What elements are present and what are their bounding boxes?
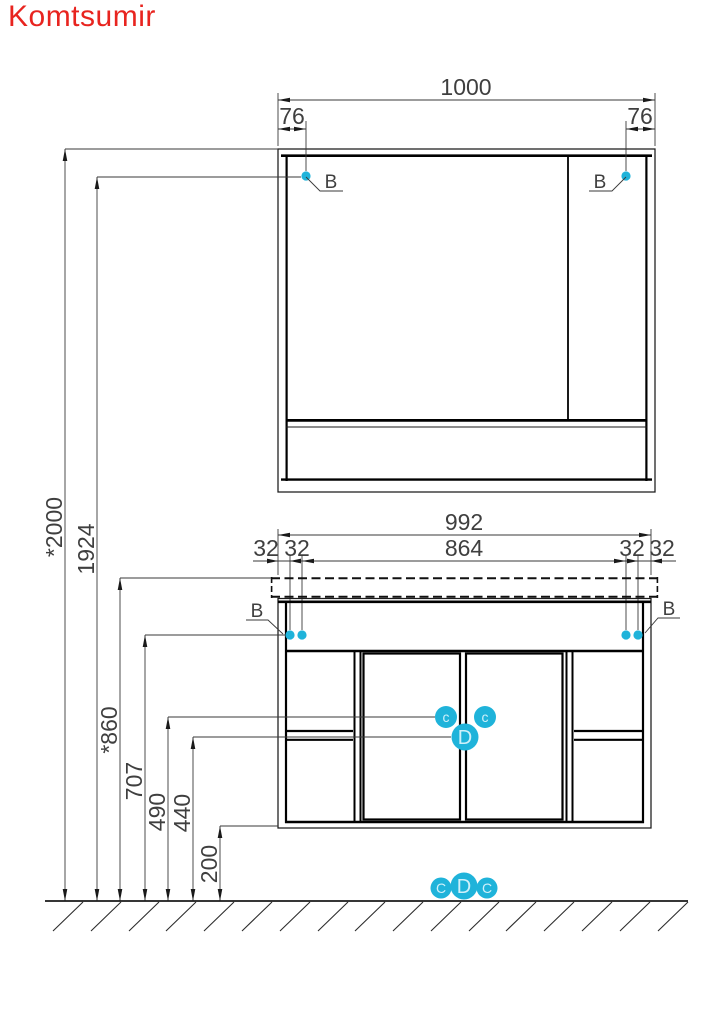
vanity-door-left <box>364 654 461 820</box>
dim-1924-label: 1924 <box>73 523 99 574</box>
mount-b-mirror-left-label: B <box>325 172 338 193</box>
dim-32-label-2: 32 <box>284 535 310 561</box>
mount-dot-vanity-right-1-icon <box>621 630 630 639</box>
callout-c-left-label: c <box>443 709 450 725</box>
dim-32-label-1: 32 <box>253 535 279 561</box>
vanity-cabinet <box>271 577 658 828</box>
dim-864-label: 864 <box>445 535 484 561</box>
mount-b-vanity-left-label: B <box>251 601 264 622</box>
dim-32-label-3: 32 <box>619 535 645 561</box>
dim-76-left-label: 76 <box>279 103 305 129</box>
mount-dot-vanity-left-1-icon <box>285 630 294 639</box>
dim-32-label-4: 32 <box>649 535 675 561</box>
floor-hatching <box>53 902 688 931</box>
mount-dot-vanity-right-2-icon <box>633 630 642 639</box>
mount-b-mirror-right-label: B <box>594 172 607 193</box>
vanity-dimensions: 992 32 32 864 32 32 <box>253 509 676 630</box>
dim-860-label: *860 <box>96 706 122 753</box>
mount-dot-mirror-right-icon <box>621 171 630 180</box>
dim-440-label: 440 <box>169 794 195 832</box>
callout-d-center-label: D <box>458 727 472 749</box>
vanity-mount-points: B B <box>246 599 680 640</box>
page: Komtsumir 1000 76 <box>0 0 723 1023</box>
dim-490-label: 490 <box>144 793 170 831</box>
vanity-outline <box>278 599 651 829</box>
callout-c-right-label: c <box>482 709 489 725</box>
mirror-cabinet-outline <box>278 149 655 492</box>
dim-200-label: 200 <box>196 845 222 883</box>
mount-b-vanity-right-label: B <box>663 599 676 620</box>
dim-1000-label: 1000 <box>440 74 491 100</box>
floor: C D C <box>45 873 688 932</box>
vanity-door-right <box>466 654 563 820</box>
leader-b-vanity-right <box>645 618 680 633</box>
floor-callout-c-right-label: C <box>482 880 492 896</box>
floor-callout-c-left-label: C <box>436 880 446 896</box>
mount-dot-mirror-left-icon <box>301 171 310 180</box>
technical-drawing: 1000 76 76 B B 992 32 32 864 <box>0 0 723 1023</box>
height-dimensions: *2000 1924 *860 707 490 440 200 <box>41 149 451 901</box>
dim-2000-label: *2000 <box>41 497 67 557</box>
dim-992-label: 992 <box>445 509 483 535</box>
floor-callout-d-label: D <box>457 876 471 898</box>
mount-dot-vanity-left-2-icon <box>297 630 306 639</box>
mirror-cabinet-dimensions: 1000 76 76 B B <box>278 74 655 193</box>
mirror-cabinet <box>278 149 655 492</box>
dim-76-right-label: 76 <box>627 103 653 129</box>
